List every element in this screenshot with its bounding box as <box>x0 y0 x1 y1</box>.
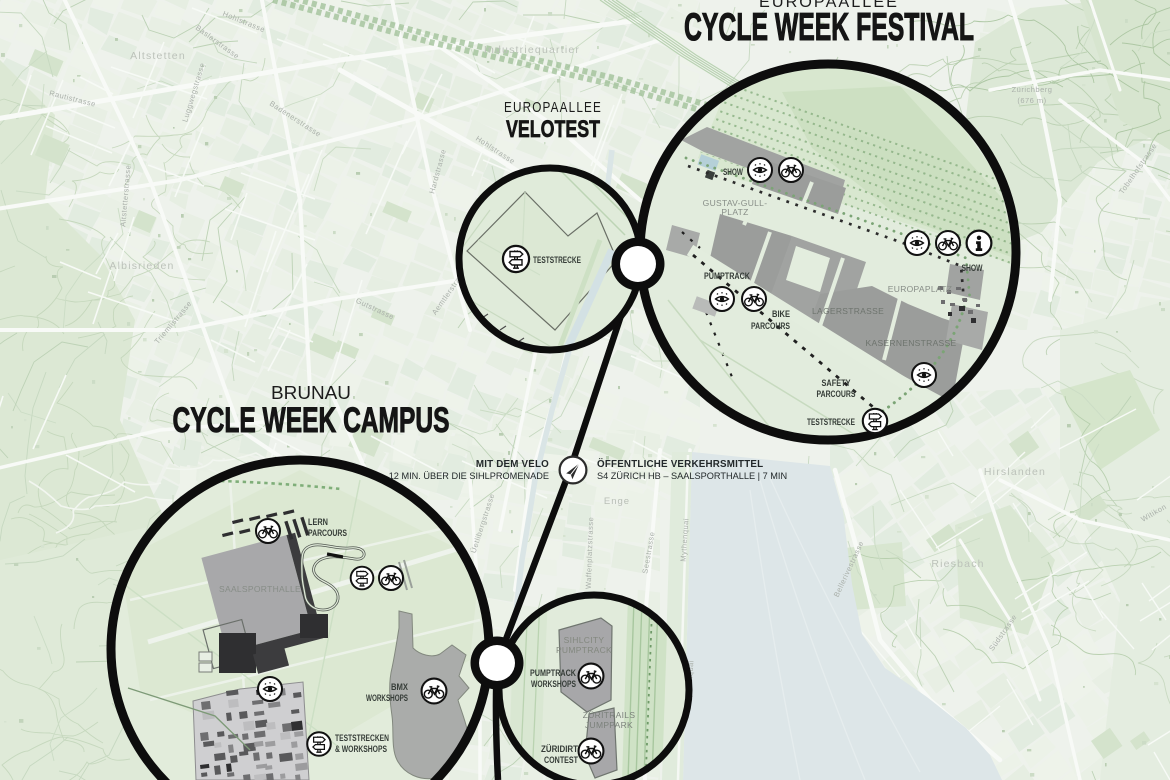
svg-text:MIT DEM VELO: MIT DEM VELO <box>476 459 549 470</box>
svg-text:& WORKSHOPS: & WORKSHOPS <box>335 744 387 755</box>
svg-text:12 MIN. ÜBER DIE SIHLPROMENADE: 12 MIN. ÜBER DIE SIHLPROMENADE <box>389 471 549 481</box>
svg-text:EUROPAPLATZ: EUROPAPLATZ <box>888 284 952 294</box>
svg-text:PARCOURS: PARCOURS <box>308 528 347 539</box>
svg-text:TESTSTRECKE: TESTSTRECKE <box>533 255 581 266</box>
svg-text:VELOTEST: VELOTEST <box>506 116 600 143</box>
svg-text:CYCLE WEEK CAMPUS: CYCLE WEEK CAMPUS <box>173 401 450 440</box>
svg-text:SAALSPORTHALLE: SAALSPORTHALLE <box>219 584 301 594</box>
svg-text:SAFETY: SAFETY <box>822 378 852 389</box>
svg-text:WORKSHOPS: WORKSHOPS <box>531 679 576 690</box>
svg-text:Hirslanden: Hirslanden <box>984 466 1046 478</box>
svg-text:ÖFFENTLICHE VERKEHRSMITTEL: ÖFFENTLICHE VERKEHRSMITTEL <box>597 459 763 470</box>
svg-text:BMX: BMX <box>391 682 409 693</box>
svg-text:PUMPTRACK: PUMPTRACK <box>704 271 750 282</box>
svg-text:EUROPAALLEE: EUROPAALLEE <box>504 99 602 116</box>
svg-text:Enge: Enge <box>604 496 630 507</box>
svg-text:JUMPPARK: JUMPPARK <box>585 720 633 730</box>
svg-text:BIKE: BIKE <box>772 309 790 320</box>
svg-text:LERN: LERN <box>308 517 328 528</box>
svg-text:ZÜRITRAILS: ZÜRITRAILS <box>583 710 636 720</box>
svg-text:TESTSTRECKE: TESTSTRECKE <box>807 417 855 428</box>
svg-text:PARCOURS: PARCOURS <box>751 321 790 332</box>
svg-text:SHOW: SHOW <box>723 167 743 178</box>
svg-text:SIHLCITY: SIHLCITY <box>564 635 605 645</box>
svg-text:CYCLE WEEK FESTIVAL: CYCLE WEEK FESTIVAL <box>684 6 974 49</box>
svg-text:PLATZ: PLATZ <box>721 207 748 217</box>
svg-text:Riesbach: Riesbach <box>931 558 984 570</box>
svg-text:S4 ZÜRICH HB – SAALSPORTHALLE: S4 ZÜRICH HB – SAALSPORTHALLE | 7 MIN <box>597 471 787 481</box>
svg-text:SHOW: SHOW <box>962 263 983 274</box>
svg-text:(676 m): (676 m) <box>1017 96 1046 105</box>
svg-text:CONTEST: CONTEST <box>544 755 578 766</box>
svg-text:KASERNENSTRASSE: KASERNENSTRASSE <box>866 338 957 348</box>
svg-text:TESTSTRECKEN: TESTSTRECKEN <box>335 733 389 744</box>
svg-text:PUMPTRACK: PUMPTRACK <box>556 645 612 655</box>
svg-text:WORKSHOPS: WORKSHOPS <box>366 693 408 704</box>
svg-text:PARCOURS: PARCOURS <box>817 389 856 400</box>
svg-text:Altstetten: Altstetten <box>130 50 186 62</box>
svg-text:Industriequartier: Industriequartier <box>484 44 580 56</box>
svg-text:PUMPTRACK: PUMPTRACK <box>530 668 576 679</box>
svg-text:Zürichberg: Zürichberg <box>1012 85 1053 94</box>
svg-text:BRUNAU: BRUNAU <box>271 383 351 403</box>
svg-text:ZÜRIDIRT: ZÜRIDIRT <box>541 744 578 755</box>
svg-text:LAGERSTRASSE: LAGERSTRASSE <box>812 306 884 316</box>
svg-text:Albisrieden: Albisrieden <box>109 260 174 272</box>
